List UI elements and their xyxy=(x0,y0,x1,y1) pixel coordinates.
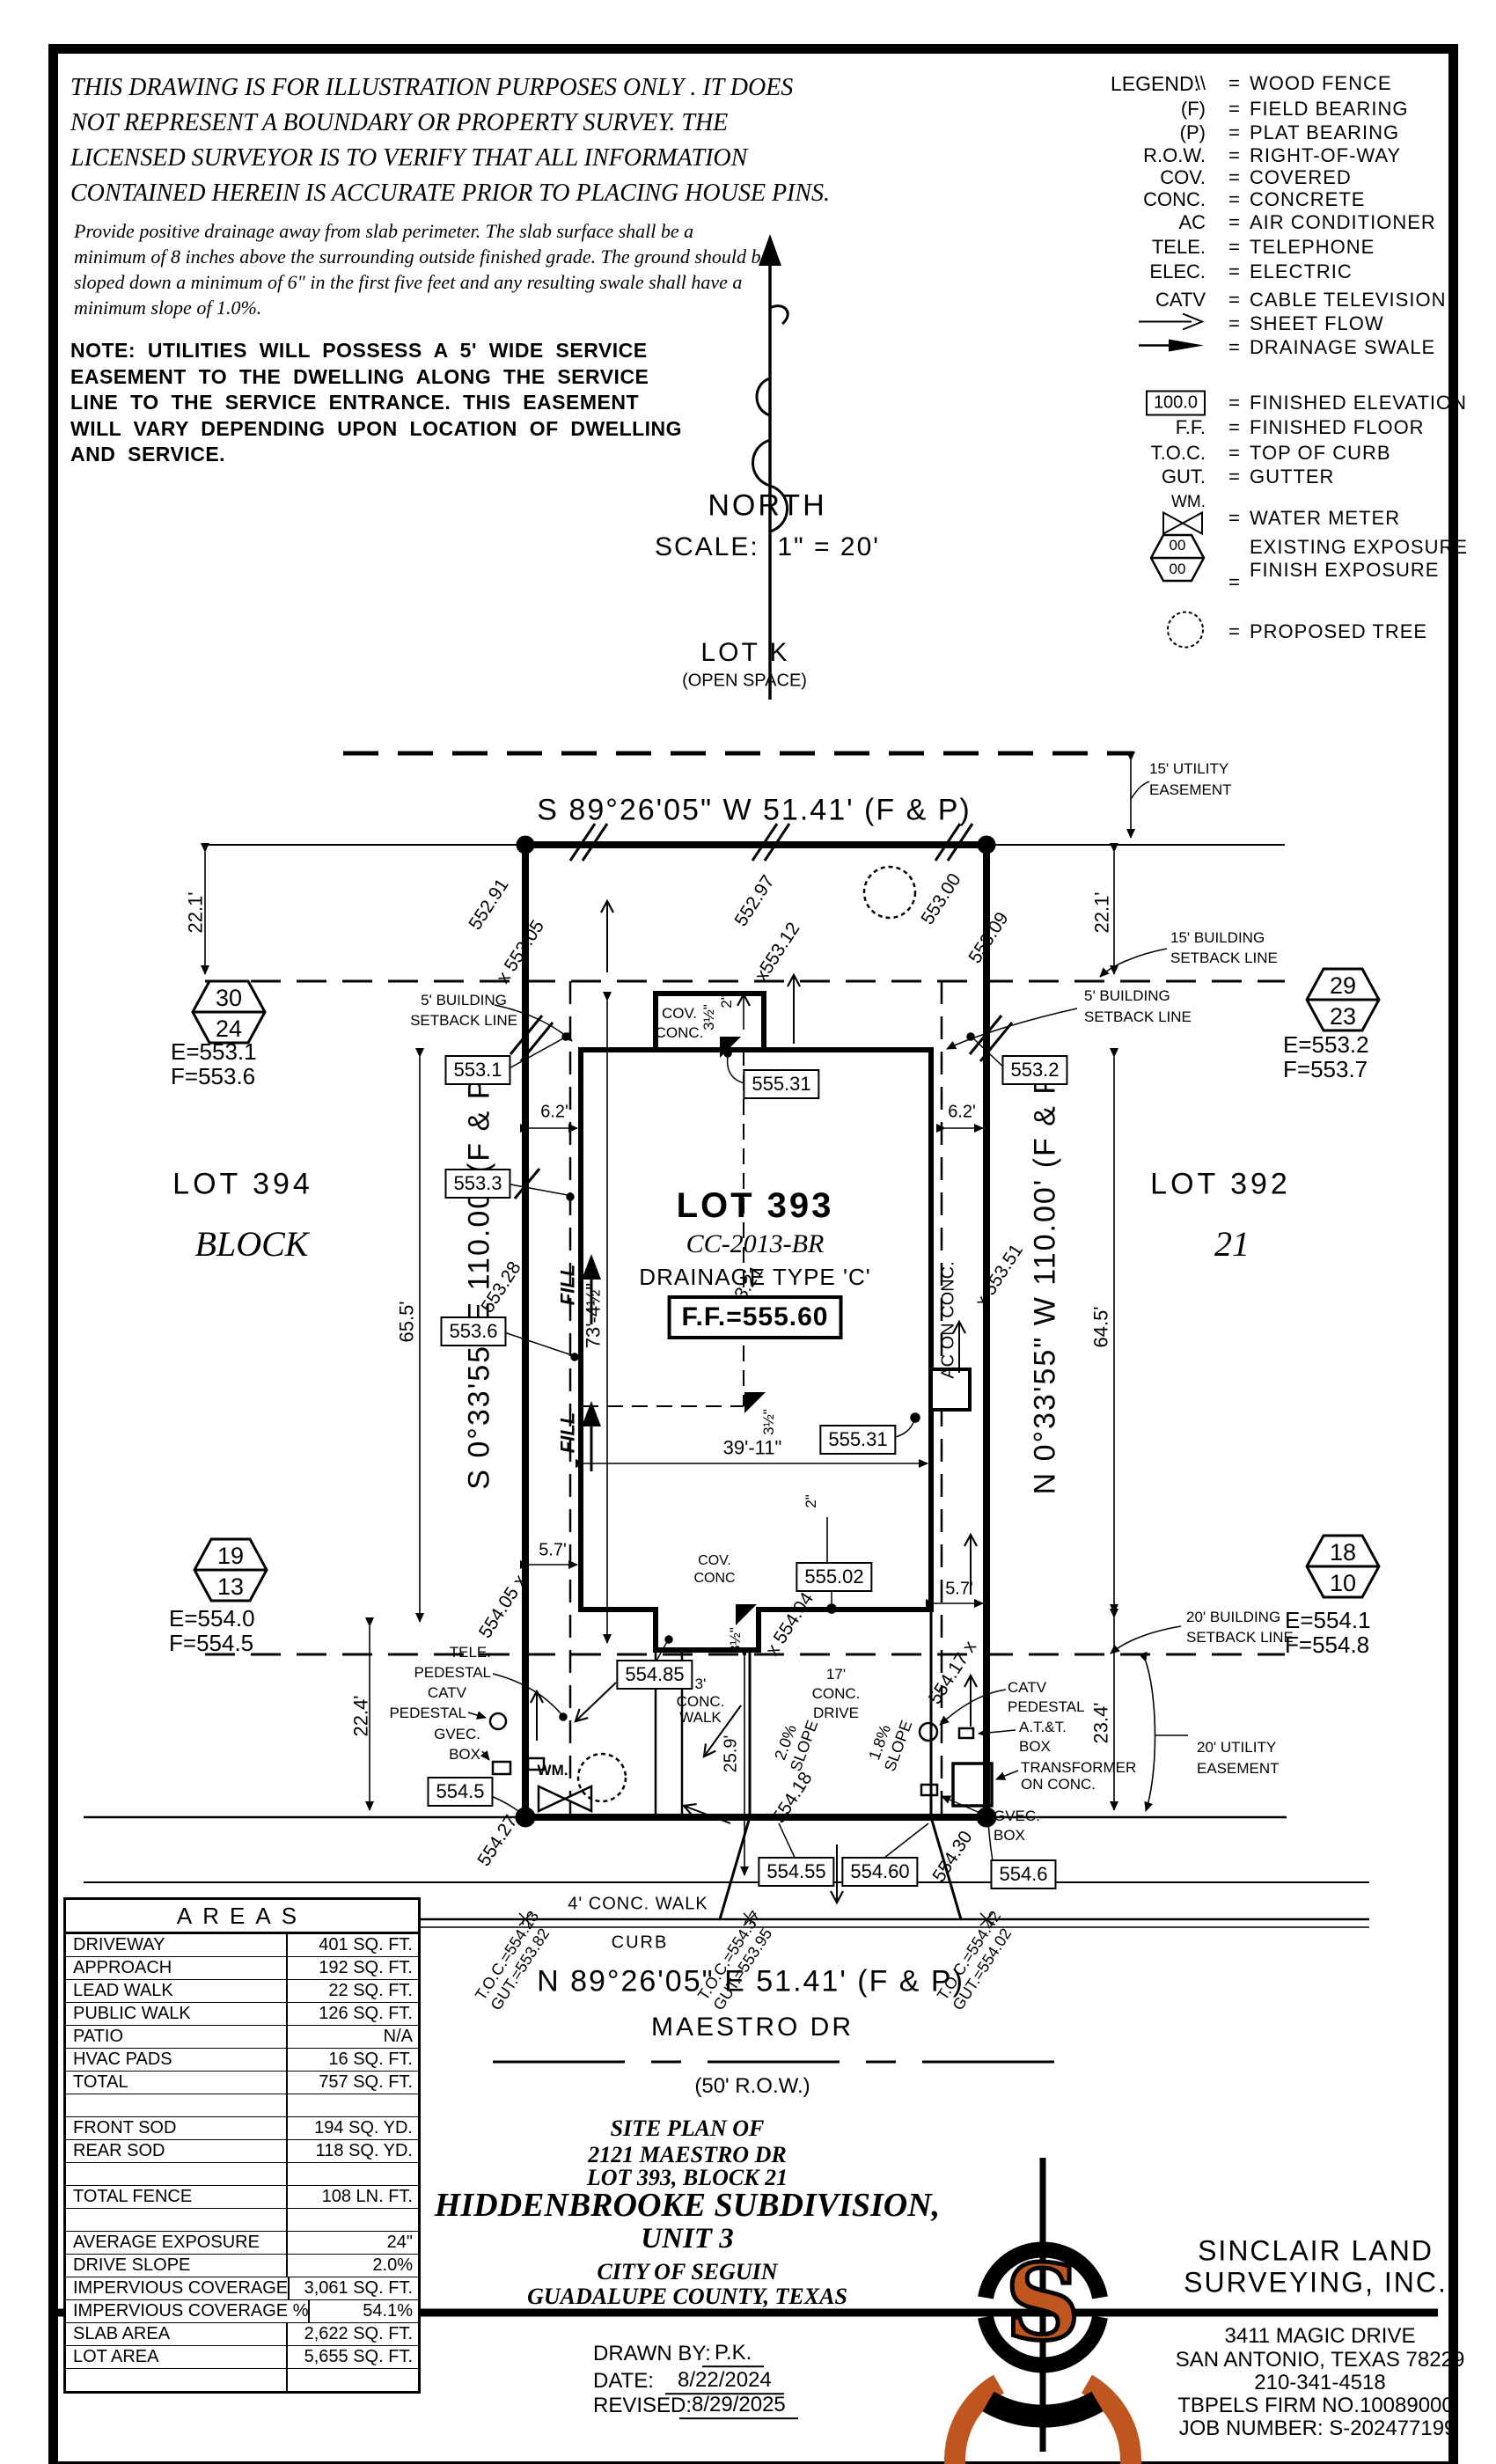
area-value: 118 SQ. YD. xyxy=(286,2140,418,2162)
equals: = xyxy=(1228,236,1240,259)
conc-walk-4-label: 4' CONC. WALK xyxy=(568,1895,708,1915)
plan-code-label: CC-2013-BR xyxy=(686,1229,825,1260)
ac-abbr: AC xyxy=(1178,211,1206,234)
west-bearing-label: S 0°33'55" E 110.00' (F & P) xyxy=(462,1066,496,1489)
legend-label: CABLE TELEVISION xyxy=(1250,289,1446,312)
equals: = xyxy=(1228,392,1240,414)
block-label: BLOCK xyxy=(195,1224,309,1265)
dim-22-4: 22.4' xyxy=(349,1695,371,1736)
date-label: DATE: xyxy=(593,2369,654,2394)
title-county: GUADALUPE COUNTY, TEXAS xyxy=(527,2284,847,2310)
south-bearing-label: N 89°26'05" E 51.41' (F & P) xyxy=(537,1964,964,1998)
finish-exposure-placeholder: 00 xyxy=(1149,561,1206,578)
drainage-note: Provide positive drainage away from slab… xyxy=(74,218,769,320)
area-value: 24" xyxy=(286,2232,418,2254)
ff-abbr: F.F. xyxy=(1176,416,1206,439)
legend-row: = DRAINAGE SWALE xyxy=(1105,334,1457,361)
street-name-label: MAESTRO DR xyxy=(635,2013,869,2043)
dim-6-2-left: 6.2' xyxy=(540,1103,568,1123)
area-value: 126 SQ. FT. xyxy=(286,2003,418,2025)
table-row: IMPERVIOUS COVERAGE %54.1% xyxy=(66,2300,418,2323)
water-meter-label: WM. xyxy=(538,1762,568,1779)
equals: = xyxy=(1228,98,1240,121)
dim-2-mid: 2" xyxy=(803,1494,820,1508)
conc-drive-label: DRIVE xyxy=(813,1705,859,1722)
legend-row: (F) = FIELD BEARING xyxy=(1105,96,1457,122)
equals: = xyxy=(1228,72,1240,95)
transformer-label: TRANSFORMER xyxy=(1021,1759,1136,1777)
equals: = xyxy=(1228,507,1240,530)
logo-letter-s: S xyxy=(1005,2241,1080,2364)
boxed-elevation: 553.3 xyxy=(444,1169,510,1199)
conc-walk-3-label: 3' xyxy=(695,1676,707,1693)
dim-3-5-bottom: 3½" xyxy=(727,1627,744,1654)
utility-easement-20-label: 20' UTILITY xyxy=(1197,1739,1276,1756)
wood-fence-symbol: \\ xyxy=(1195,72,1206,95)
area-label xyxy=(66,2209,286,2231)
equals: = xyxy=(1228,571,1240,594)
table-row: REAR SOD118 SQ. YD. xyxy=(66,2140,418,2163)
area-value xyxy=(286,2369,418,2391)
disclaimer-note: THIS DRAWING IS FOR ILLUSTRATION PURPOSE… xyxy=(70,70,830,211)
area-value: 5,655 SQ. FT. xyxy=(286,2346,418,2368)
finished-elevation-box-symbol: 100.0 xyxy=(1146,391,1206,416)
area-value: 22 SQ. FT. xyxy=(286,1980,418,2002)
finish-grade-value: F=553.6 xyxy=(171,1064,255,1090)
title-subdivision: HIDDENBROOKE SUBDIVISION, xyxy=(435,2187,940,2226)
gvec-box-label: GVEC. xyxy=(434,1726,480,1743)
covered-concrete-label: CONC. xyxy=(656,1024,704,1042)
legend-row: ELEC. = ELECTRIC xyxy=(1105,259,1457,285)
exposure-marker: 30 24 xyxy=(190,979,268,1045)
area-label: PATIO xyxy=(66,2026,286,2048)
lot-393-label: LOT 393 xyxy=(677,1185,834,1226)
dim-5-7-right: 5.7' xyxy=(945,1580,973,1600)
scale-label: SCALE: 1" = 20' xyxy=(655,532,880,563)
area-label: HVAC PADS xyxy=(66,2049,286,2071)
existing-exposure-value: 19 xyxy=(192,1543,269,1570)
legend-row: = SHEET FLOW xyxy=(1105,311,1457,337)
legend-row: = PROPOSED TREE xyxy=(1105,612,1457,652)
legend-label: DRAINAGE SWALE xyxy=(1250,336,1435,359)
tele-pedestal-label: TELE. xyxy=(450,1644,491,1661)
gvec-box-label: BOX xyxy=(449,1746,480,1764)
legend-label: EXISTING EXPOSURE xyxy=(1250,536,1468,559)
finish-exposure-value: 23 xyxy=(1304,1003,1382,1030)
lot-392-label: LOT 392 xyxy=(1150,1167,1291,1201)
area-value: 2,622 SQ. FT. xyxy=(286,2323,418,2345)
building-setback-5-label: SETBACK LINE xyxy=(410,1012,517,1030)
conc-drive-label: 17' xyxy=(826,1666,846,1683)
existing-grade-value: E=553.2 xyxy=(1283,1032,1369,1059)
gvec-box-label: BOX xyxy=(994,1827,1025,1844)
building-setback-5-label: 5' BUILDING xyxy=(1084,987,1170,1005)
table-row: APPROACH192 SQ. FT. xyxy=(66,1957,418,1980)
drawn-by-label: DRAWN BY: xyxy=(593,2342,711,2366)
catv-pedestal-label: CATV xyxy=(1008,1679,1046,1697)
utility-easement-note: NOTE: UTILITIES WILL POSSESS A 5' WIDE S… xyxy=(70,338,682,468)
legend-label: TELEPHONE xyxy=(1250,236,1375,259)
catv-abbr: CATV xyxy=(1155,289,1206,312)
table-row: LOT AREA5,655 SQ. FT. xyxy=(66,2346,418,2369)
legend-label: GUTTER xyxy=(1250,466,1334,488)
area-value: 108 LN. FT. xyxy=(286,2186,418,2208)
elec-abbr: ELEC. xyxy=(1149,260,1206,283)
legend-label: AIR CONDITIONER xyxy=(1250,211,1436,234)
legend-label: CONCRETE xyxy=(1250,188,1365,211)
tele-abbr: TELE. xyxy=(1152,236,1206,259)
covered-concrete-label: COV. xyxy=(662,1005,697,1023)
table-row: TOTAL FENCE108 LN. FT. xyxy=(66,2186,418,2209)
equals: = xyxy=(1228,289,1240,312)
equals: = xyxy=(1228,620,1240,643)
conc-drive-label: CONC. xyxy=(812,1685,861,1703)
area-label xyxy=(66,2369,286,2391)
area-value xyxy=(286,2163,418,2185)
drawn-by-value: P.K. xyxy=(702,2341,764,2367)
north-label: NORTH xyxy=(708,488,826,523)
area-value: 757 SQ. FT. xyxy=(286,2072,418,2094)
existing-exposure-value: 30 xyxy=(190,985,268,1012)
table-row: IMPERVIOUS COVERAGE3,061 SQ. FT. xyxy=(66,2277,418,2300)
legend-label: WATER METER xyxy=(1250,507,1400,530)
building-setback-20-label: 20' BUILDING xyxy=(1186,1609,1280,1626)
dim-5-7-left: 5.7' xyxy=(539,1541,567,1561)
finish-grade-value: F=554.5 xyxy=(169,1631,253,1657)
catv-pedestal-label: CATV xyxy=(428,1684,466,1702)
utility-easement-15-label: 15' UTILITY xyxy=(1149,760,1228,778)
finish-grade-value: F=554.8 xyxy=(1285,1632,1369,1659)
existing-exposure-value: 18 xyxy=(1304,1539,1382,1566)
dim-39-11: 39'-11" xyxy=(723,1436,782,1458)
table-row: DRIVEWAY401 SQ. FT. xyxy=(66,1934,418,1957)
finish-exposure-value: 13 xyxy=(192,1573,269,1601)
dim-65-5: 65.5' xyxy=(395,1301,417,1342)
area-label: TOTAL FENCE xyxy=(66,2186,286,2208)
equals: = xyxy=(1228,260,1240,283)
field-bearing-symbol: (F) xyxy=(1181,98,1206,121)
legend-label: PROPOSED TREE xyxy=(1250,620,1427,643)
title-city: CITY OF SEGUIN xyxy=(597,2259,777,2285)
legend-label: FINISH EXPOSURE xyxy=(1250,559,1439,582)
tele-pedestal-label: PEDESTAL xyxy=(414,1664,491,1682)
legend-row: T.O.C. = TOP OF CURB xyxy=(1105,440,1457,466)
plat-bearing-symbol: (P) xyxy=(1180,121,1206,144)
covered-concrete-label: COV. xyxy=(698,1553,731,1569)
exposure-marker: 19 13 xyxy=(192,1536,269,1603)
toc-abbr: T.O.C. xyxy=(1151,442,1206,465)
disclaimer-line: LICENSED SURVEYOR IS TO VERIFY THAT ALL … xyxy=(70,141,830,176)
legend-row: 00 00 = EXISTING EXPOSURE FINISH EXPOSUR… xyxy=(1105,558,1457,607)
area-label: FRONT SOD xyxy=(66,2117,286,2139)
dim-22-1-left: 22.1' xyxy=(184,891,206,933)
lot-394-label: LOT 394 xyxy=(172,1167,313,1201)
table-row xyxy=(66,2094,418,2117)
table-row xyxy=(66,2369,418,2391)
area-label: SLAB AREA xyxy=(66,2323,286,2345)
table-row: DRIVE SLOPE2.0% xyxy=(66,2255,418,2277)
dim-73-4half: 73'-4½" xyxy=(582,1283,604,1348)
area-label: LOT AREA xyxy=(66,2346,286,2368)
fill-label: FILL xyxy=(556,1265,578,1305)
disclaimer-line: NOT REPRESENT A BOUNDARY OR PROPERTY SUR… xyxy=(70,106,830,141)
area-value: 2.0% xyxy=(286,2255,418,2277)
table-row: LEAD WALK22 SQ. FT. xyxy=(66,1980,418,2003)
firm-name: SURVEYING, INC. xyxy=(1184,2267,1448,2299)
leader-lines xyxy=(468,949,1181,1871)
equals: = xyxy=(1228,336,1240,359)
open-space-label: (OPEN SPACE) xyxy=(682,671,807,692)
dim-3-5-top: 3½" xyxy=(700,1004,718,1030)
dim-23-4: 23.4' xyxy=(1089,1702,1111,1743)
revised-label: REVISED: xyxy=(593,2394,692,2418)
finish-grade-value: F=553.7 xyxy=(1283,1057,1368,1083)
proposed-tree-icon xyxy=(1165,610,1206,655)
drainage-swale-arrow-icon xyxy=(1137,337,1206,359)
legend-label: FINISHED ELEVATION xyxy=(1250,392,1467,414)
legend-row: 100.0 = FINISHED ELEVATION xyxy=(1105,390,1457,416)
dim-3-5-mid: 3½" xyxy=(760,1409,778,1435)
title-site-plan-of: SITE PLAN OF xyxy=(611,2116,765,2142)
date-value: 8/22/2024 xyxy=(665,2368,784,2394)
exposure-marker: 18 10 xyxy=(1304,1533,1382,1600)
dim-6-2-right: 6.2' xyxy=(948,1103,976,1123)
existing-exposure-value: 29 xyxy=(1304,972,1382,1000)
building-setback-20-label: SETBACK LINE xyxy=(1186,1629,1294,1646)
legend-row: GUT. = GUTTER xyxy=(1105,464,1457,490)
firm-phone: 210-341-4518 xyxy=(1254,2371,1385,2395)
building-setback-15-label: SETBACK LINE xyxy=(1170,950,1278,967)
area-label: AVERAGE EXPOSURE xyxy=(66,2232,286,2254)
drainage-note-line: Provide positive drainage away from slab… xyxy=(74,218,769,244)
boxed-elevation: 554.55 xyxy=(758,1857,834,1887)
areas-table-title: AREAS xyxy=(66,1900,418,1934)
area-label: DRIVE SLOPE xyxy=(66,2255,286,2277)
title-unit: UNIT 3 xyxy=(641,2223,733,2256)
boxed-elevation: 555.02 xyxy=(796,1562,872,1592)
legend-row: \\ = WOOD FENCE xyxy=(1105,70,1457,97)
existing-exposure-placeholder: 00 xyxy=(1149,537,1206,554)
exposure-hexagon-icon: 00 00 xyxy=(1149,558,1206,607)
area-value: 54.1% xyxy=(308,2300,418,2322)
transformer-label: ON CONC. xyxy=(1021,1776,1096,1793)
dim-22-1-right: 22.1' xyxy=(1090,891,1112,933)
table-row: PUBLIC WALK126 SQ. FT. xyxy=(66,2003,418,2026)
utility-easement-15-label: EASEMENT xyxy=(1149,781,1232,799)
legend-row: TELE. = TELEPHONE xyxy=(1105,234,1457,260)
table-row: FRONT SOD194 SQ. YD. xyxy=(66,2117,418,2140)
fill-label: FILL xyxy=(556,1412,578,1453)
area-value xyxy=(286,2094,418,2116)
table-row: PATION/A xyxy=(66,2026,418,2049)
area-label: DRIVEWAY xyxy=(66,1934,286,1956)
area-value xyxy=(286,2209,418,2231)
catv-pedestal-label: PEDESTAL xyxy=(389,1705,466,1722)
catv-pedestal-label: PEDESTAL xyxy=(1008,1698,1085,1716)
drainage-type-label: DRAINAGE TYPE 'C' xyxy=(639,1265,870,1291)
boxed-elevation: 554.85 xyxy=(616,1660,693,1690)
disclaimer-line: THIS DRAWING IS FOR ILLUSTRATION PURPOSE… xyxy=(70,70,830,106)
dim-2-top: 2" xyxy=(718,994,736,1008)
dim-64-5: 64.5' xyxy=(1089,1306,1111,1347)
gut-abbr: GUT. xyxy=(1162,466,1206,488)
drainage-note-line: minimum of 8 inches above the surroundin… xyxy=(74,244,769,269)
revised-value: 8/29/2025 xyxy=(679,2393,798,2419)
boxed-elevation: 555.31 xyxy=(819,1425,896,1455)
area-label: IMPERVIOUS COVERAGE xyxy=(66,2277,288,2299)
att-box-label: A.T.&T. xyxy=(1019,1719,1067,1736)
firm-address: SAN ANTONIO, TEXAS 78229 xyxy=(1176,2348,1465,2372)
equals: = xyxy=(1228,416,1240,439)
legend-label: FINISHED FLOOR xyxy=(1250,416,1425,439)
area-value: 192 SQ. FT. xyxy=(286,1957,418,1979)
utility-note-line: LINE TO THE SERVICE ENTRANCE. THIS EASEM… xyxy=(70,390,682,416)
existing-grade-value: E=553.1 xyxy=(171,1039,257,1066)
area-label: TOTAL xyxy=(66,2072,286,2094)
boxed-elevation: 553.2 xyxy=(1001,1055,1067,1085)
utility-note-line: NOTE: UTILITIES WILL POSSESS A 5' WIDE S… xyxy=(70,338,682,364)
area-value: 194 SQ. YD. xyxy=(286,2117,418,2139)
legend-label: PLAT BEARING xyxy=(1250,121,1399,144)
area-value: 16 SQ. FT. xyxy=(286,2049,418,2071)
east-bearing-label: N 0°33'55" W 110.00' (F & P) xyxy=(1028,1061,1062,1495)
legend-label: WOOD FENCE xyxy=(1250,72,1392,95)
site-plan-sheet: THIS DRAWING IS FOR ILLUSTRATION PURPOSE… xyxy=(0,0,1496,2464)
disclaimer-line: CONTAINED HEREIN IS ACCURATE PRIOR TO PL… xyxy=(70,176,830,211)
covered-concrete-label: CONC xyxy=(693,1571,735,1587)
legend-label: FIELD BEARING xyxy=(1250,98,1408,121)
table-row: TOTAL757 SQ. FT. xyxy=(66,2072,418,2094)
ac-on-conc-label: AC ON CONC. xyxy=(939,1261,959,1378)
drainage-note-line: sloped down a minimum of 6" in the first… xyxy=(74,269,769,295)
legend-row: F.F. = FINISHED FLOOR xyxy=(1105,414,1457,441)
equals: = xyxy=(1228,121,1240,144)
legend-label: SHEET FLOW xyxy=(1250,312,1384,335)
north-bearing-label: S 89°26'05" W 51.41' (F & P) xyxy=(537,793,971,827)
legend-label: TOP OF CURB xyxy=(1250,442,1391,465)
firm-job-number: JOB NUMBER: S-202477199 xyxy=(1179,2416,1456,2441)
finish-exposure-value: 10 xyxy=(1304,1570,1382,1597)
area-value: 3,061 SQ. FT. xyxy=(288,2277,418,2299)
dim-25-9: 25.9' xyxy=(722,1735,742,1773)
legend-label: ELECTRIC xyxy=(1250,260,1353,283)
right-of-way-label: (50' R.O.W.) xyxy=(694,2074,810,2099)
firm-address: 3411 MAGIC DRIVE xyxy=(1225,2324,1416,2349)
boxed-elevation: 554.6 xyxy=(990,1859,1056,1889)
firm-name: SINCLAIR LAND xyxy=(1198,2235,1434,2268)
area-label: LEAD WALK xyxy=(66,1980,286,2002)
equals: = xyxy=(1228,188,1240,211)
drainage-note-line: minimum slope of 1.0%. xyxy=(74,295,769,320)
boxed-elevation: 553.1 xyxy=(444,1055,510,1085)
area-label xyxy=(66,2163,286,2185)
legend-row: AC = AIR CONDITIONER xyxy=(1105,209,1457,236)
table-row: HVAC PADS16 SQ. FT. xyxy=(66,2049,418,2072)
area-label xyxy=(66,2094,286,2116)
areas-table: AREAS DRIVEWAY401 SQ. FT. APPROACH192 SQ… xyxy=(63,1897,421,2394)
building-setback-5-label: 5' BUILDING xyxy=(421,992,507,1009)
table-row: SLAB AREA2,622 SQ. FT. xyxy=(66,2323,418,2346)
boxed-elevation: 553.6 xyxy=(440,1316,506,1346)
equals: = xyxy=(1228,466,1240,488)
existing-grade-value: E=554.1 xyxy=(1285,1608,1371,1634)
table-row xyxy=(66,2209,418,2232)
area-label: PUBLIC WALK xyxy=(66,2003,286,2025)
building-setback-15-label: 15' BUILDING xyxy=(1170,929,1265,947)
equals: = xyxy=(1228,211,1240,234)
finished-floor-value: F.F.=555.60 xyxy=(668,1295,843,1339)
equals: = xyxy=(1228,442,1240,465)
utility-easement-20-label: EASEMENT xyxy=(1197,1760,1280,1778)
lot-k-label: LOT K xyxy=(700,638,789,669)
sheet-flow-arrow-icon xyxy=(1137,312,1206,336)
area-value: N/A xyxy=(286,2026,418,2048)
area-label: REAR SOD xyxy=(66,2140,286,2162)
equals: = xyxy=(1228,312,1240,335)
boxed-elevation: 555.31 xyxy=(743,1069,819,1099)
block-21-label: 21 xyxy=(1214,1224,1250,1265)
exposure-marker: 29 23 xyxy=(1304,966,1382,1033)
gvec-box-label: GVEC. xyxy=(994,1808,1040,1825)
conc-walk-3-label: WALK xyxy=(679,1709,722,1727)
utility-note-line: WILL VARY DEPENDING UPON LOCATION OF DWE… xyxy=(70,416,682,443)
legend-row: CATV = CABLE TELEVISION xyxy=(1105,287,1457,313)
area-label: IMPERVIOUS COVERAGE % xyxy=(66,2300,308,2322)
utility-note-line: AND SERVICE. xyxy=(70,442,682,468)
boxed-elevation: 554.60 xyxy=(841,1857,918,1887)
table-row: AVERAGE EXPOSURE24" xyxy=(66,2232,418,2255)
table-row xyxy=(66,2163,418,2186)
curb-label: CURB xyxy=(612,1933,669,1954)
boxed-elevation: 554.5 xyxy=(427,1777,493,1807)
existing-grade-value: E=554.0 xyxy=(169,1606,255,1632)
firm-tbpels: TBPELS FIRM NO.10089000 xyxy=(1177,2394,1453,2418)
conc-abbr: CONC. xyxy=(1143,188,1206,211)
area-label: APPROACH xyxy=(66,1957,286,1979)
building-setback-5-label: SETBACK LINE xyxy=(1084,1008,1192,1026)
area-value: 401 SQ. FT. xyxy=(286,1934,418,1956)
conc-walk-3-label: CONC. xyxy=(677,1693,725,1711)
utility-note-line: EASEMENT TO THE DWELLING ALONG THE SERVI… xyxy=(70,364,682,391)
att-box-label: BOX xyxy=(1019,1738,1051,1756)
